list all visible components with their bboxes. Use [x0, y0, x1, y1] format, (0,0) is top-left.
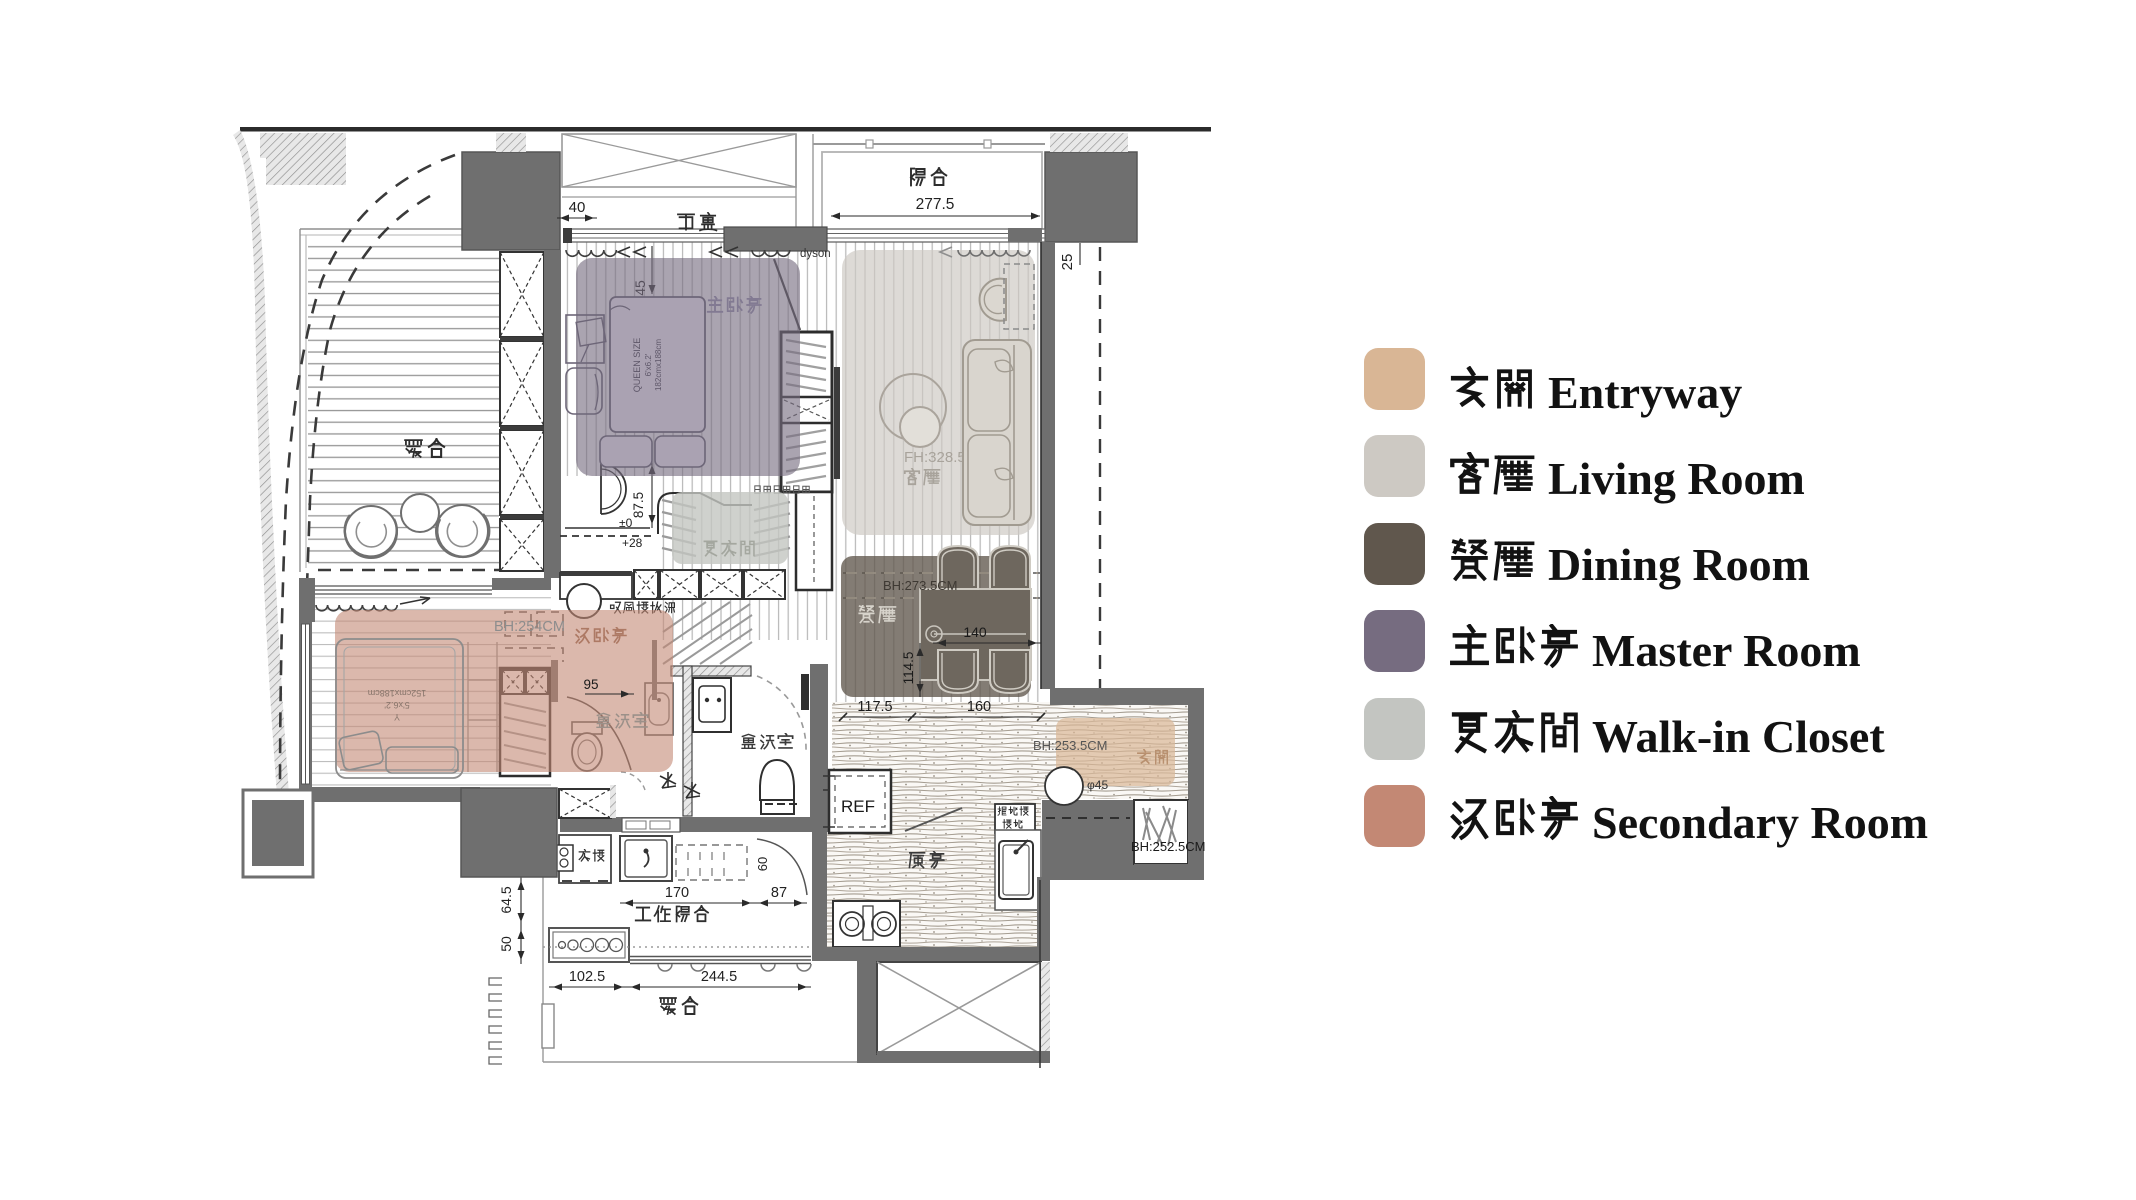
- svg-text:5'x6.2': 5'x6.2': [384, 700, 410, 710]
- svg-text:BH:253.5CM: BH:253.5CM: [1033, 738, 1107, 753]
- svg-text:87: 87: [771, 885, 787, 901]
- svg-text:25: 25: [1059, 254, 1076, 271]
- svg-text:+28: +28: [622, 536, 643, 550]
- svg-text:6'x6.2': 6'x6.2': [644, 353, 653, 376]
- svg-text:102.5: 102.5: [569, 969, 605, 985]
- svg-text:40: 40: [569, 199, 586, 216]
- svg-text:Living Room: Living Room: [1548, 453, 1805, 504]
- svg-text:64.5: 64.5: [498, 886, 514, 913]
- svg-text:BH:252.5CM: BH:252.5CM: [1131, 839, 1205, 854]
- svg-text:50: 50: [498, 936, 514, 952]
- svg-text:Dining Room: Dining Room: [1548, 539, 1810, 590]
- svg-text:BH:273.5CM: BH:273.5CM: [883, 578, 957, 593]
- svg-text:160: 160: [967, 699, 991, 715]
- svg-text:244.5: 244.5: [701, 969, 737, 985]
- svg-text:114.5: 114.5: [901, 652, 916, 685]
- svg-text:Secondary Room: Secondary Room: [1592, 797, 1928, 848]
- svg-text:φ45: φ45: [1087, 778, 1108, 792]
- svg-text:152cmx188cm: 152cmx188cm: [368, 688, 427, 698]
- svg-text:95: 95: [583, 677, 598, 692]
- svg-text:60: 60: [755, 857, 770, 871]
- svg-text:140: 140: [963, 624, 987, 640]
- svg-text:277.5: 277.5: [916, 196, 955, 213]
- svg-text:QUEEN SIZE: QUEEN SIZE: [632, 338, 642, 393]
- svg-text:Walk-in Closet: Walk-in Closet: [1592, 711, 1885, 762]
- svg-text:182cmx188cm: 182cmx188cm: [654, 339, 663, 391]
- svg-text:Entryway: Entryway: [1548, 367, 1742, 418]
- svg-text:dyson: dyson: [800, 248, 831, 260]
- svg-text:87.5: 87.5: [631, 492, 646, 518]
- svg-text:170: 170: [665, 885, 689, 901]
- svg-text:REF: REF: [841, 797, 875, 816]
- svg-text:Y: Y: [394, 712, 400, 722]
- svg-text:Master Room: Master Room: [1592, 625, 1861, 676]
- svg-text:BH:254CM: BH:254CM: [494, 619, 565, 635]
- svg-text:117.5: 117.5: [857, 699, 892, 715]
